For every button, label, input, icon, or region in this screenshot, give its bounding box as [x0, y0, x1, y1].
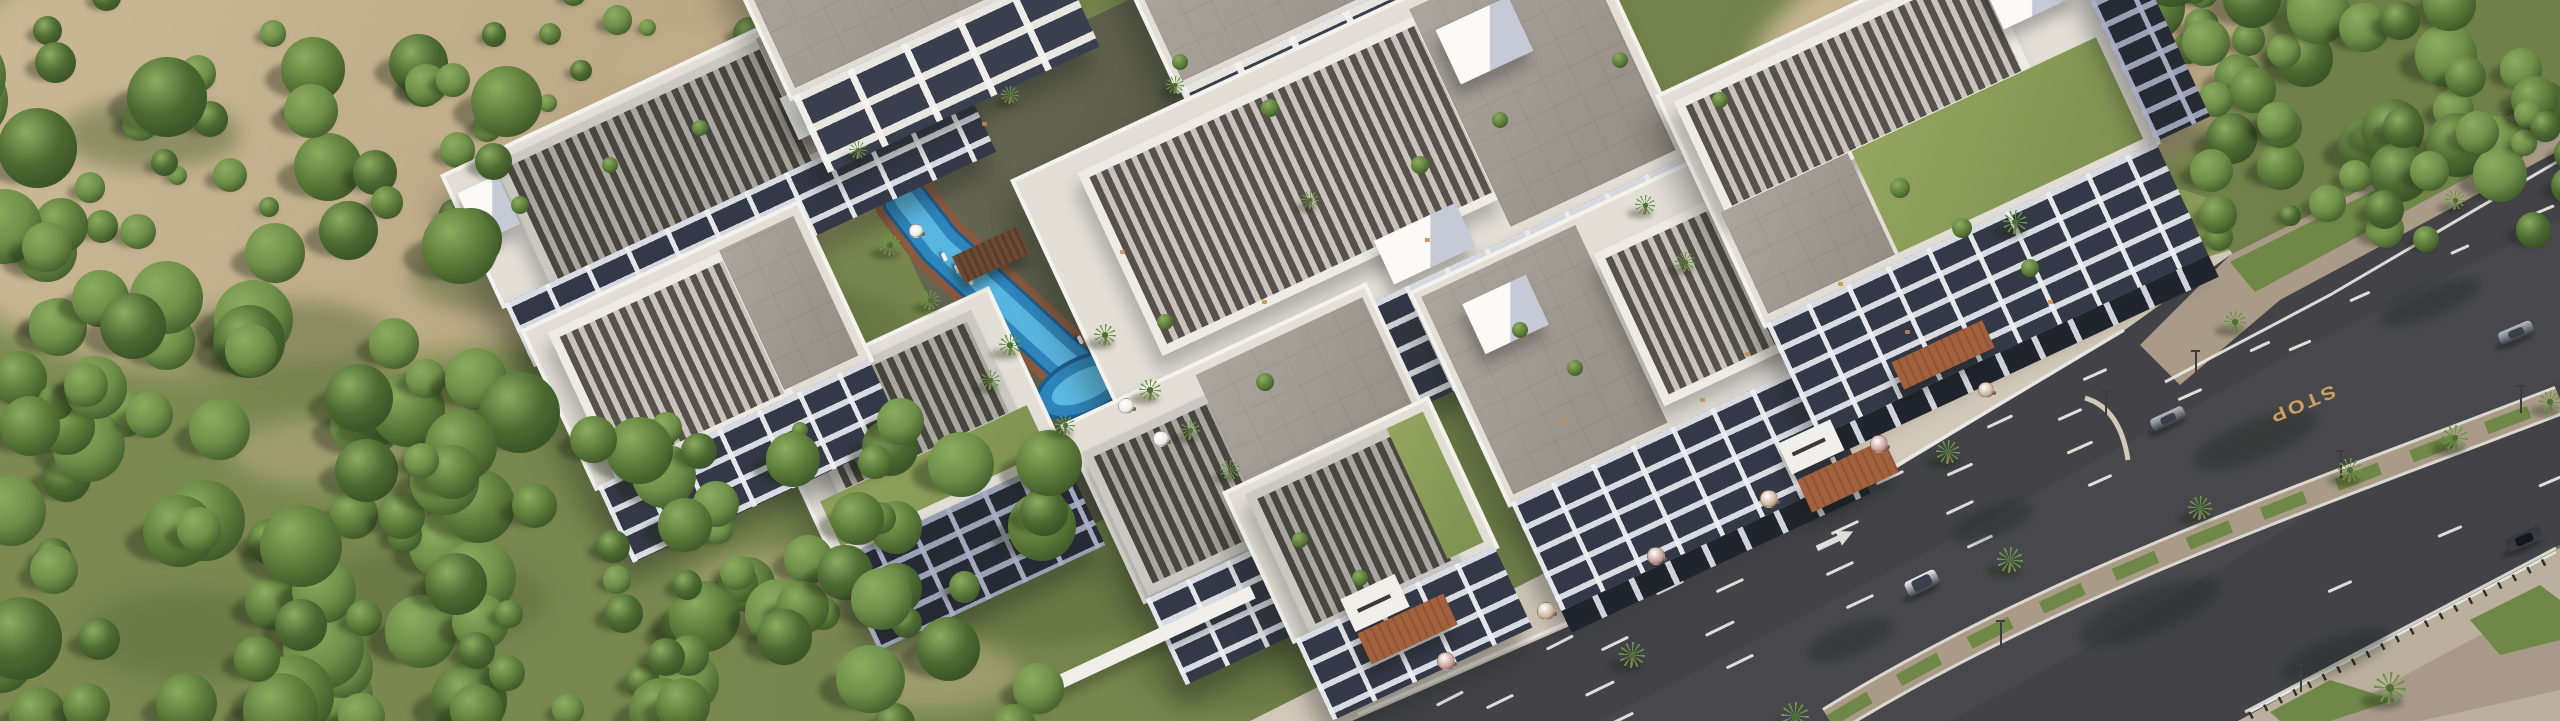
palm-crown-center: [2547, 399, 2553, 405]
tree: [422, 208, 498, 284]
tree: [1016, 430, 1083, 497]
lit-window: [1905, 330, 1910, 334]
tree: [0, 108, 77, 187]
tree: [877, 398, 924, 445]
tree: [2516, 212, 2551, 247]
roof-plant: [1157, 314, 1173, 330]
tree: [2182, 19, 2229, 66]
tree: [851, 568, 912, 629]
roof-plant: [1292, 532, 1308, 548]
lit-window: [1745, 352, 1750, 356]
cafe-umbrella: [1978, 382, 1994, 398]
street-lamp: [2300, 666, 2302, 692]
palm-crown-center: [1102, 332, 1108, 338]
roof-plant: [1952, 218, 1972, 238]
tree: [2473, 147, 2527, 201]
palm-crown-center: [1945, 449, 1951, 455]
palm-crown-center: [887, 242, 893, 248]
tree: [245, 223, 304, 282]
tree: [213, 158, 247, 192]
tree: [325, 364, 393, 432]
tree: [2410, 151, 2450, 191]
roof-plant: [1256, 373, 1274, 391]
cafe-umbrella: [1647, 547, 1665, 565]
tree: [100, 293, 166, 359]
cafe-umbrella: [909, 224, 923, 238]
palm-crown-center: [2197, 505, 2203, 511]
tree: [603, 565, 631, 593]
street-lamp: [2520, 387, 2522, 413]
cafe-umbrella: [1537, 602, 1555, 620]
tree: [552, 694, 583, 721]
tree: [2339, 160, 2371, 192]
cafe-umbrella: [1870, 435, 1888, 453]
tree: [0, 396, 60, 456]
tree: [658, 498, 712, 552]
tree: [766, 432, 820, 486]
tree: [917, 617, 981, 681]
roof-plant: [511, 196, 529, 214]
roof-plant: [1492, 112, 1508, 128]
tree: [2309, 185, 2346, 222]
tree: [22, 222, 72, 272]
palm-crown-center: [988, 378, 993, 383]
tree: [371, 186, 403, 218]
tree: [495, 600, 523, 628]
palm-crown-center: [2232, 319, 2238, 325]
tree: [30, 546, 78, 594]
tree: [189, 399, 250, 460]
roof-plant: [1172, 54, 1188, 70]
tree: [425, 553, 487, 615]
tree: [949, 571, 981, 603]
tree: [475, 143, 512, 180]
lit-window: [2048, 300, 2053, 304]
tree: [606, 417, 673, 484]
tree: [35, 42, 76, 83]
tree: [647, 638, 685, 676]
tree: [512, 483, 557, 528]
tree: [2190, 149, 2233, 192]
tree: [2257, 143, 2304, 190]
palm-crown-center: [1643, 203, 1648, 208]
roof-plant: [1352, 570, 1368, 586]
tree: [260, 505, 342, 587]
palm-crown-center: [1063, 423, 1068, 428]
roof-plant: [1261, 99, 1279, 117]
entrance-logo-mark: [1357, 594, 1391, 613]
palm-crown-center: [2453, 198, 2458, 203]
tree: [858, 445, 892, 479]
tree: [369, 318, 420, 369]
lit-window: [1838, 282, 1843, 286]
palm-crown-center: [2386, 684, 2394, 692]
palm-crown-center: [2012, 219, 2018, 225]
palm-crown-center: [1147, 387, 1153, 393]
tree: [120, 214, 156, 250]
tree: [127, 57, 207, 137]
roof-plant: [1411, 156, 1429, 174]
street-lamp: [2000, 622, 2002, 648]
tree: [604, 594, 643, 633]
palm-crown-center: [1683, 260, 1688, 265]
cafe-umbrella: [1153, 431, 1169, 447]
roof-plant: [692, 120, 708, 136]
palm-crown-center: [1228, 468, 1233, 473]
tree: [2199, 195, 2237, 233]
tree: [836, 645, 904, 713]
tree: [2279, 205, 2300, 226]
tree: [471, 66, 543, 138]
cafe-umbrella: [1760, 490, 1778, 508]
tree: [2380, 1, 2419, 40]
tree: [436, 63, 470, 97]
tree: [596, 530, 629, 563]
tree: [831, 492, 884, 545]
tree: [2530, 111, 2560, 142]
tree: [294, 133, 362, 201]
palm-crown-center: [1792, 713, 1799, 720]
tree: [2456, 111, 2499, 154]
cafe-umbrella: [1437, 652, 1455, 670]
lit-window: [1120, 250, 1125, 254]
street-lamp: [2105, 392, 2107, 418]
palm-crown-center: [1188, 428, 1193, 433]
palm-crown-center: [2347, 467, 2353, 473]
roof-plant: [602, 157, 618, 173]
roof-plant: [2021, 259, 2039, 277]
aerial-render-scene: STOP: [0, 0, 2560, 721]
lit-window: [1560, 420, 1565, 424]
tree: [177, 507, 222, 552]
tree: [335, 439, 398, 502]
tree: [284, 84, 338, 138]
cafe-umbrella: [1118, 398, 1134, 414]
tree: [757, 609, 813, 665]
roof-plant: [1712, 92, 1728, 108]
tree: [225, 324, 277, 376]
roof-plant: [1612, 52, 1628, 68]
lit-window: [982, 122, 987, 126]
tree: [275, 599, 327, 651]
lit-window: [1262, 300, 1267, 304]
street-lamp: [2195, 352, 2197, 378]
tree: [681, 433, 717, 469]
tree: [78, 618, 120, 660]
palm-crown-center: [1007, 342, 1013, 348]
tree: [928, 432, 993, 497]
entrance-logo-mark: [1792, 438, 1826, 457]
roof-plant: [1890, 178, 1910, 198]
tree: [2445, 56, 2486, 97]
tree: [2232, 23, 2265, 56]
lit-window: [1425, 238, 1430, 242]
roof-plant: [1567, 360, 1583, 376]
tree: [64, 363, 108, 407]
roof-plant: [1512, 322, 1528, 338]
tree: [720, 555, 755, 590]
tree: [126, 391, 173, 438]
lit-window: [1700, 398, 1705, 402]
palm-crown-center: [928, 298, 933, 303]
tree: [2383, 107, 2424, 148]
